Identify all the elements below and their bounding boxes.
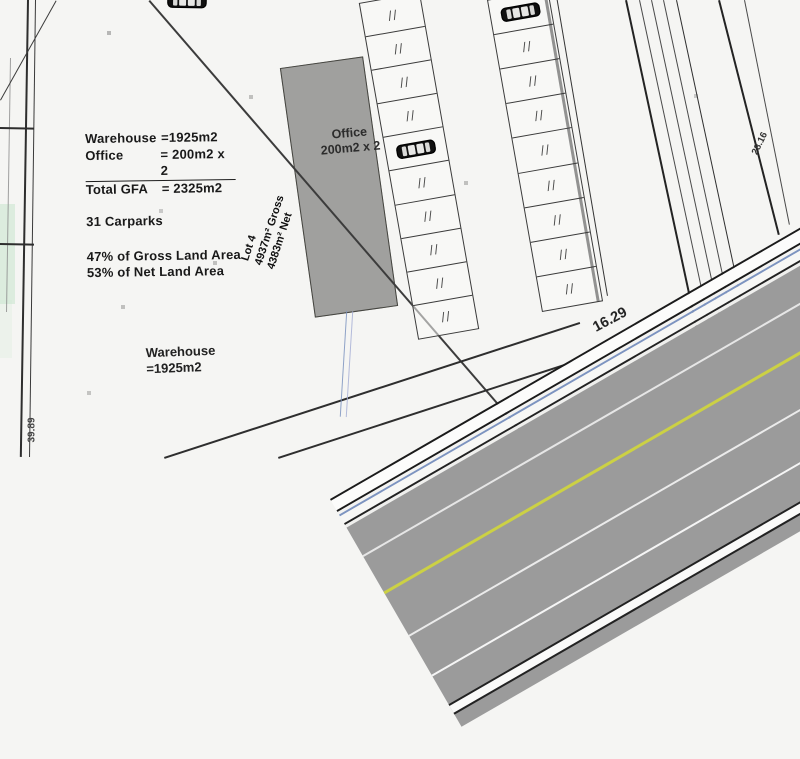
gfa-value: = 200m2 x 2 [160, 145, 235, 179]
gfa-label: Office [85, 147, 161, 181]
parking-column-2 [487, 0, 603, 312]
car-icon [500, 1, 542, 24]
gfa-value: =1925m2 [161, 129, 218, 146]
net-land-note: 53% of Net Land Area [87, 263, 241, 282]
gfa-row-office: Office = 200m2 x 2 [85, 145, 235, 181]
stall-mark [401, 76, 408, 87]
stall-mark [424, 211, 431, 222]
site-plan-scan: { "plan": { "gfa_table": { "rows": [ {"l… [0, 0, 800, 457]
stall-mark [554, 214, 561, 225]
warehouse-label: Warehouse =1925m2 [145, 343, 216, 377]
left-boundary-line-inner [29, 0, 36, 457]
stall-mark [523, 41, 530, 52]
warehouse-label-line2: =1925m2 [146, 359, 216, 377]
stall-mark [529, 76, 536, 87]
gfa-label: Warehouse [85, 130, 161, 148]
stall-mark [566, 283, 573, 294]
left-boundary-dimension-text: 39.89 [27, 399, 38, 443]
right-boundary-b1 [719, 0, 780, 235]
stall-mark [442, 311, 449, 322]
boundary-tick-1 [0, 127, 34, 129]
warehouse-label-line1: Warehouse [145, 343, 215, 361]
stall-mark [395, 43, 402, 54]
blue-service-line [340, 311, 353, 417]
stall-mark [418, 177, 425, 188]
stall-mark [541, 145, 548, 156]
gfa-row-total: Total GFA = 2325m2 [86, 179, 240, 198]
car-icon [167, 0, 207, 9]
stall-mark [535, 110, 542, 121]
stall-mark [389, 9, 396, 20]
left-boundary-line-outer [20, 0, 29, 457]
gfa-label: Total GFA [86, 181, 162, 199]
gfa-annotation-block: Warehouse =1925m2 Office = 200m2 x 2 Tot… [85, 129, 241, 282]
carparks-note: 31 Carparks [86, 212, 240, 231]
scan-speckles [0, 0, 2, 2]
stall-mark [430, 244, 437, 255]
stall-mark [548, 179, 555, 190]
gfa-value: = 2325m2 [162, 180, 223, 197]
stall-mark [560, 249, 567, 260]
parked-car-top-edge [167, 0, 207, 9]
stall-mark [436, 278, 443, 289]
stall-mark [407, 110, 414, 121]
